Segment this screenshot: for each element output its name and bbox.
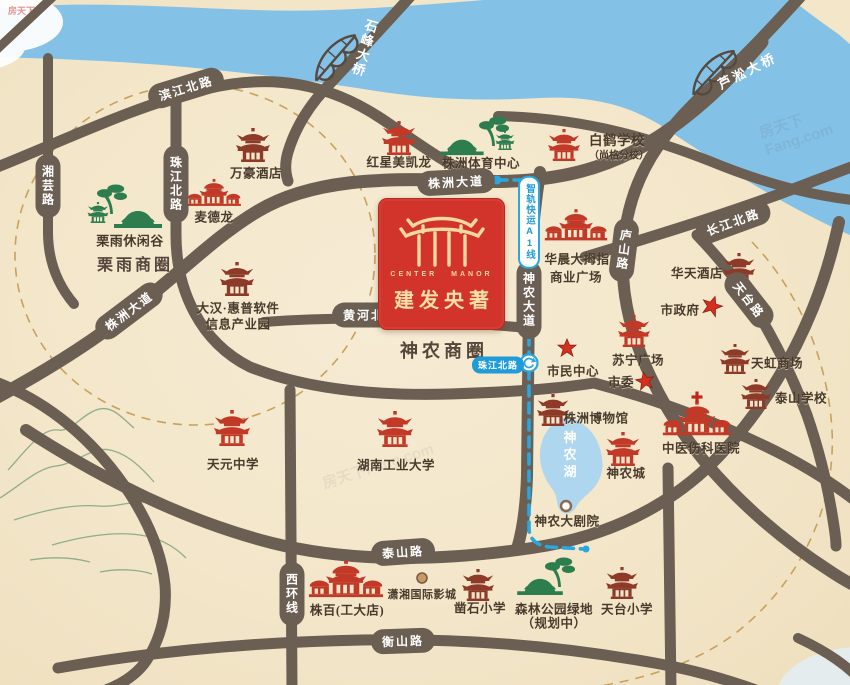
liyu-district-label: 栗雨商圈: [97, 251, 173, 275]
sports-center-art: [440, 116, 514, 155]
cinema-label: 潇湘国际影城: [388, 586, 457, 602]
zaoshi-school-label: 凿石小学: [454, 598, 506, 617]
project-name-cn: 建发央著: [389, 284, 494, 313]
museum-label: 株洲博物馆: [563, 408, 628, 427]
shennongcheng-icon: [606, 432, 640, 466]
grand-theater-marker: [561, 501, 571, 511]
wanhao-label: 万豪酒店: [230, 163, 282, 182]
tianhong-label: 天虹商场: [751, 353, 803, 372]
road-label-zhuzhoudadao: 株洲大道: [416, 167, 495, 196]
tianyuan-school-icon: [214, 410, 250, 446]
forest-park-art: [517, 557, 575, 595]
huachen-plaza-icon: [545, 209, 607, 240]
wanhao-hotel-icon: [236, 128, 270, 162]
hut-university-label: 湖南工业大学: [357, 455, 435, 474]
city-gov-label: 市政府: [660, 300, 699, 319]
zhubai-store-icon: [309, 560, 383, 597]
forest-park-label-line2: （规划中）: [521, 613, 586, 632]
gate-icon: [399, 211, 485, 269]
road-label-hengshanlu: 衡山路: [371, 627, 436, 654]
sports-pavilion-icon: [496, 131, 515, 150]
grand-theater-label: 神农大剧院: [534, 511, 599, 530]
road-label-xiangyunlu: 湘芸路: [36, 154, 61, 218]
baihe-school-icon: [548, 129, 580, 161]
hospital-cross-icon: [692, 392, 703, 403]
hongxing-label: 红星美凯龙: [366, 152, 431, 171]
shennongcheng-label: 神农城: [606, 463, 645, 482]
project-logo: CENTER MANOR 建发央著: [378, 198, 505, 330]
huachen-label-line2: 商业广场: [550, 267, 602, 286]
zaoshi-school-icon: [462, 569, 494, 601]
tram-line-label: 智轨快运A1线: [518, 176, 540, 269]
road-xihuan: [290, 390, 292, 685]
road-label-shennongdadao: 神农大道: [517, 261, 542, 339]
tianhong-mall-icon: [720, 344, 750, 374]
city-committee-label: 市委: [608, 372, 634, 391]
baihe-school-sublabel: （尚格分校）: [589, 147, 649, 162]
road-label-xihuanxian: 西环线: [280, 562, 305, 626]
project-name-en: CENTER MANOR: [390, 271, 492, 278]
dahan-label-line2: 信息产业园: [205, 314, 270, 333]
road-label-zhujiangbeilu: 珠江北路: [164, 145, 189, 223]
forest-bridge-icon: [517, 579, 563, 595]
liyu-bridge-icon: [114, 211, 162, 228]
liyu-valley-art: [88, 184, 163, 228]
lake-label: 神农湖: [560, 431, 579, 482]
citizen-center-label: 市民中心: [547, 361, 599, 380]
dahan-hp-icon: [220, 262, 254, 296]
maidelong-label: 麦德龙: [194, 207, 233, 226]
tianyuan-school-label: 天元中学: [207, 454, 259, 473]
taishan-school-label: 泰山学校: [775, 388, 827, 407]
suning-label: 苏宁广场: [612, 350, 664, 369]
cinema-marker: [417, 573, 427, 583]
tiantai-school-icon: [606, 567, 638, 599]
zhubai-label: 株百(工大店): [310, 600, 384, 619]
citizen-center-star-icon: [558, 339, 576, 356]
location-map: 滨江北路 湘芸路 珠江北路 株洲大道 株洲大道 黄河北路 神农大道 庐山路 长江…: [0, 0, 850, 685]
liyu-pavilion-icon: [88, 202, 109, 223]
hut-university-icon: [377, 411, 413, 447]
tcm-hospital-label: 中医伤科医院: [662, 438, 740, 457]
tram-end-dot: [583, 546, 590, 553]
liyu-valley-label: 栗雨休闲谷: [96, 231, 164, 250]
tram-station-label: 珠江北路: [472, 357, 524, 374]
tiantai-school-label: 天台小学: [601, 599, 653, 618]
road-south-vertical: [668, 468, 671, 685]
huachen-label-line1: 华晨大拇指: [544, 249, 609, 268]
city-gov-star-icon: [700, 293, 725, 317]
road-label-taishanlu: 泰山路: [370, 537, 436, 566]
huatian-hotel-label: 华天酒店: [671, 263, 723, 282]
maidelong-icon: [187, 179, 241, 206]
